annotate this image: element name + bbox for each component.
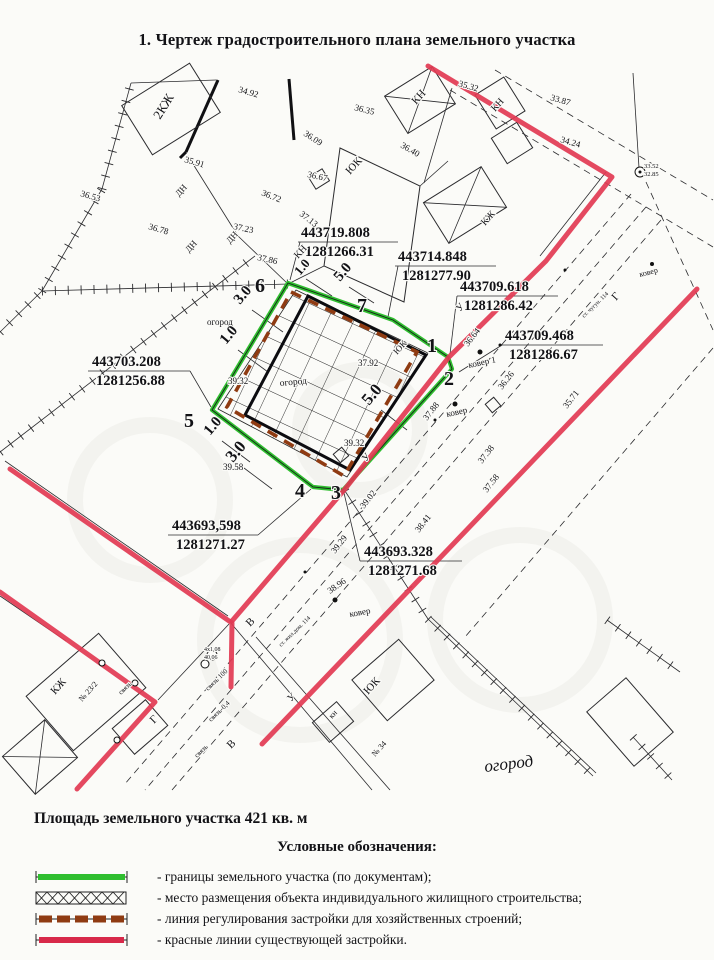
svg-text:443693,598: 443693,598: [172, 518, 241, 534]
svg-text:№ 34: № 34: [370, 739, 388, 758]
svg-text:5: 5: [184, 410, 194, 432]
svg-text:443719.808: 443719.808: [301, 225, 370, 241]
svg-text:39.32: 39.32: [344, 438, 364, 448]
svg-text:33.52: 33.52: [644, 163, 659, 170]
legend-row-regulation-line: - линия регулирования застройки для хозя…: [34, 908, 582, 929]
svg-text:36.26: 36.26: [496, 369, 517, 392]
legend-label-boundary: - границы земельного участка (по докумен…: [157, 869, 431, 885]
svg-text:443693.328: 443693.328: [364, 544, 433, 560]
svg-text:ст. жил.дом. 114: ст. жил.дом. 114: [278, 616, 312, 649]
green-boundary-swatch-icon: [34, 869, 129, 885]
legend-label-building-spot: - место размещения объекта индивидуально…: [157, 890, 582, 906]
legend-title: Условные обозначения:: [0, 839, 714, 856]
svg-text:ДН: ДН: [173, 182, 189, 198]
svg-text:36.78: 36.78: [147, 221, 170, 236]
svg-text:В: В: [244, 615, 258, 629]
svg-text:2КЖ: 2КЖ: [150, 91, 177, 122]
svg-text:33.87: 33.87: [549, 92, 572, 107]
svg-text:37.92: 37.92: [358, 358, 378, 368]
svg-text:443703.208: 443703.208: [92, 354, 161, 370]
svg-text:39.32: 39.32: [228, 376, 248, 386]
legend-label-regulation-line: - линия регулирования застройки для хозя…: [157, 911, 522, 927]
red-line-swatch-icon: [34, 932, 129, 948]
svg-text:КЖ: КЖ: [479, 209, 498, 228]
svg-text:37.38: 37.38: [476, 443, 497, 466]
svg-text:4x1,08: 4x1,08: [204, 647, 221, 653]
legend-label-red-lines: - красные линии существующей застройки.: [157, 932, 407, 948]
svg-text:кн: кн: [327, 708, 340, 721]
svg-text:443709.618: 443709.618: [460, 279, 529, 295]
svg-text:5.0: 5.0: [331, 260, 355, 285]
svg-text:36.09: 36.09: [302, 128, 325, 148]
svg-text:У: У: [285, 691, 298, 704]
svg-text:3: 3: [331, 482, 341, 504]
svg-text:36.67: 36.67: [307, 169, 329, 183]
svg-text:В: В: [225, 737, 239, 751]
svg-text:1281271.27: 1281271.27: [176, 537, 245, 553]
page-title: 1. Чертеж градостроительного плана земел…: [0, 30, 714, 50]
svg-text:3.0: 3.0: [231, 283, 255, 308]
brown-dashed-swatch-icon: [34, 911, 129, 927]
svg-text:35.71: 35.71: [561, 388, 581, 410]
svg-text:38.96: 38.96: [325, 576, 348, 596]
svg-text:1281286.42: 1281286.42: [464, 298, 533, 314]
svg-text:38.41: 38.41: [413, 512, 433, 534]
svg-text:36.53: 36.53: [79, 188, 102, 203]
svg-text:КН: КН: [409, 88, 428, 107]
legend-row-red-lines: - красные линии существующей застройки.: [34, 929, 582, 950]
legend: - границы земельного участка (по докумен…: [34, 866, 582, 950]
plot-area-text: Площадь земельного участка 421 кв. м: [34, 810, 307, 828]
svg-text:№ 23/2: № 23/2: [77, 680, 100, 704]
svg-text:связь: связь: [193, 743, 210, 760]
svg-text:32.85: 32.85: [644, 171, 659, 178]
svg-text:1281256.88: 1281256.88: [96, 373, 165, 389]
svg-text:36.35: 36.35: [354, 102, 377, 117]
svg-text:1281266.31: 1281266.31: [305, 244, 374, 260]
svg-text:1: 1: [427, 335, 437, 357]
svg-text:огород: огород: [483, 751, 534, 776]
svg-text:КЖ: КЖ: [48, 676, 69, 697]
svg-text:40,06: 40,06: [204, 655, 218, 661]
svg-text:Г: Г: [609, 290, 622, 303]
svg-text:ДН: ДН: [183, 238, 199, 254]
svg-text:2: 2: [444, 368, 454, 390]
svg-text:36.72: 36.72: [260, 188, 283, 205]
svg-text:1281271.68: 1281271.68: [368, 563, 437, 579]
cross-hatch-swatch-icon: [34, 890, 129, 906]
svg-text:ковер: ковер: [638, 266, 658, 279]
svg-text:4: 4: [295, 480, 305, 502]
svg-text:7: 7: [357, 295, 367, 317]
svg-text:37.58: 37.58: [481, 472, 502, 495]
svg-text:ст. чугун. 114: ст. чугун. 114: [581, 291, 610, 319]
legend-row-boundary: - границы земельного участка (по докумен…: [34, 866, 582, 887]
svg-text:443709.468: 443709.468: [505, 328, 574, 344]
svg-text:36.40: 36.40: [399, 140, 422, 159]
legend-row-building-spot: - место размещения объекта индивидуально…: [34, 887, 582, 908]
svg-text:ковер: ковер: [349, 605, 372, 619]
svg-text:37.86: 37.86: [257, 252, 279, 266]
svg-text:443714.848: 443714.848: [398, 249, 467, 265]
svg-text:34.92: 34.92: [237, 84, 259, 99]
svg-text:6: 6: [255, 275, 265, 297]
svg-text:1281286.67: 1281286.67: [509, 347, 578, 363]
